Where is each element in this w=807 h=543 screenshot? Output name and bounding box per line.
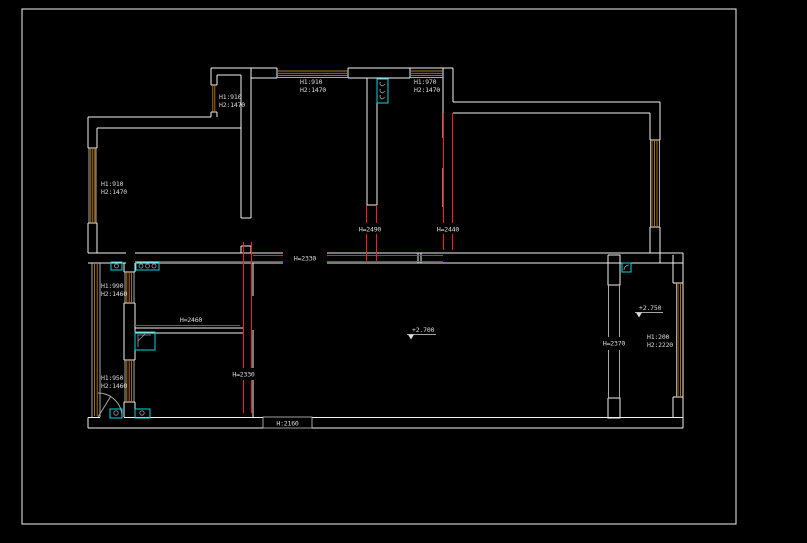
- window-label-left-room-line2: H2:1470: [101, 188, 127, 196]
- elevation-label-balcony: +2.750: [639, 304, 662, 312]
- window-label-balcony-line1: H1:200: [647, 333, 670, 341]
- dimension-label-h2330-mid: H=2330: [232, 371, 255, 379]
- window-label-small-room-line1: H1:910: [219, 93, 242, 101]
- window-label-kitchen-line1: H1:910: [300, 78, 323, 86]
- dimension-label-h2160: H:2160: [276, 420, 299, 428]
- elevation-label-living: +2.700: [412, 326, 435, 334]
- dimension-label-h2330-top: H=2330: [294, 255, 317, 263]
- window-label-small-room-line2: H2:1470: [219, 101, 245, 109]
- cad-canvas[interactable]: H=2490 H=2440 H=2330 H=2460 H=2330 H=237…: [0, 0, 807, 543]
- window-label-mid-upper-line2: H2:1460: [101, 290, 127, 298]
- dimension-label-h2460: H=2460: [180, 316, 203, 324]
- window-label-mid-lower-line1: H1:950: [101, 374, 124, 382]
- window-label-mid-lower-line2: H2:1460: [101, 382, 127, 390]
- dimension-label-h2490: H=2490: [359, 226, 382, 234]
- dimension-label-h2370: H=2370: [603, 340, 626, 348]
- canvas-background: [0, 0, 807, 543]
- window-label-left-room-line1: H1:910: [101, 180, 124, 188]
- window-label-bath-line1: H1:970: [414, 78, 437, 86]
- window-label-kitchen-line2: H2:1470: [300, 86, 326, 94]
- window-label-balcony-line2: H2:2220: [647, 341, 673, 349]
- window-label-mid-upper-line1: H1:990: [101, 282, 124, 290]
- cad-viewport: H=2490 H=2440 H=2330 H=2460 H=2330 H=237…: [0, 0, 807, 543]
- dimension-label-h2440: H=2440: [437, 226, 460, 234]
- window-label-bath-line2: H2:1470: [414, 86, 440, 94]
